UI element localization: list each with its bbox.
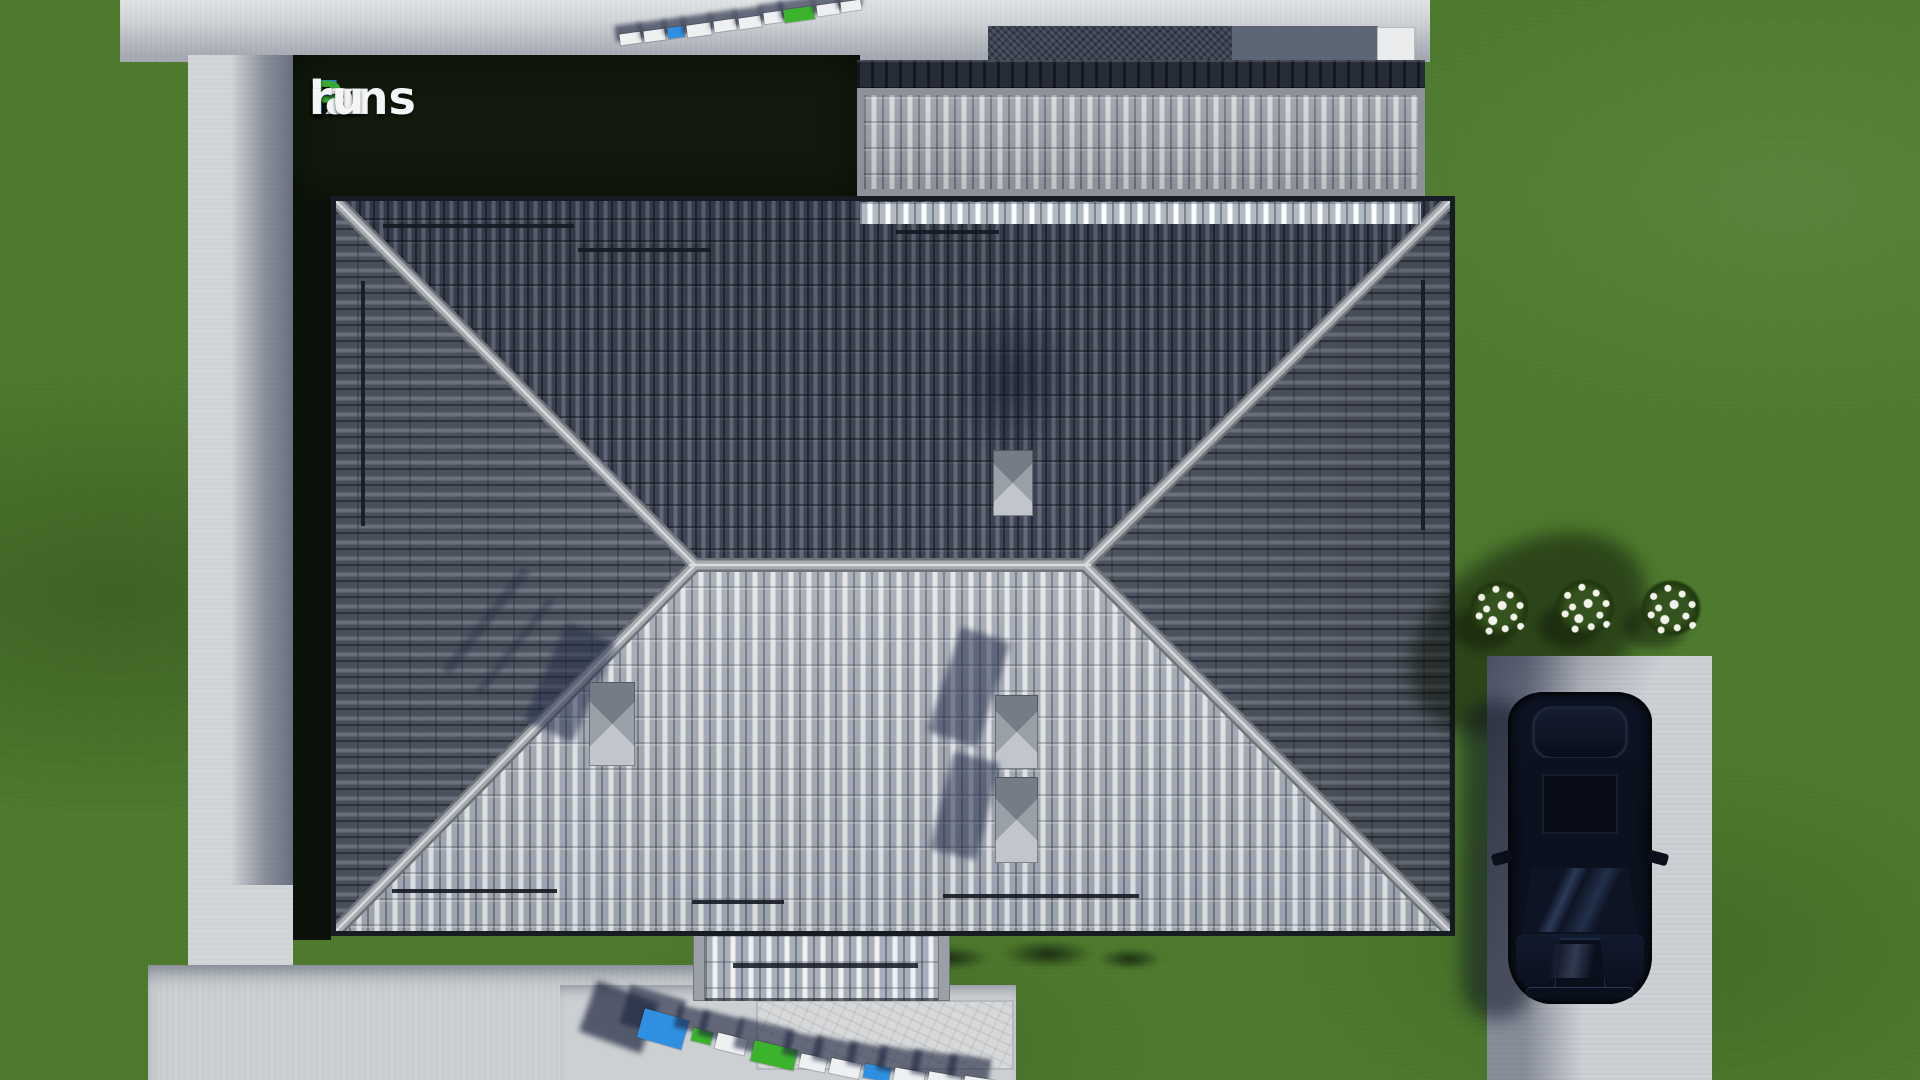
annex-roof-tiles xyxy=(864,95,1418,189)
flower-bush-3 xyxy=(1640,579,1702,637)
roof-ridge-lines xyxy=(331,196,1455,936)
gravel-pad xyxy=(988,26,1232,62)
car-rear-window xyxy=(1532,706,1628,760)
shrub-patch xyxy=(1098,948,1162,970)
porch-side-border xyxy=(693,935,705,1001)
porch-roof-tiles xyxy=(705,935,938,1001)
porch-side-border xyxy=(938,935,950,1001)
car-windshield xyxy=(1522,868,1638,932)
roof-edge-shadow-strip xyxy=(293,196,331,940)
hip-ridges xyxy=(333,198,1453,934)
porch-snow-guard xyxy=(733,963,918,968)
roof-vent-1 xyxy=(993,450,1033,516)
main-hip-roof xyxy=(331,196,1455,936)
watermark-segment: ru xyxy=(309,71,364,125)
annex-eave-course xyxy=(860,202,1421,224)
parked-car xyxy=(1508,692,1652,1004)
utility-box xyxy=(1378,28,1414,60)
roof-vent-2 xyxy=(589,682,635,766)
aerial-house-render: FixPlans.ru xyxy=(0,0,1920,1080)
shaded-yard-panel: FixPlans.ru xyxy=(293,55,860,196)
porch-roof xyxy=(693,935,950,1001)
car-hood-reflection xyxy=(1524,944,1636,978)
stamped-concrete-pad xyxy=(758,1002,1012,1068)
annex-roof-frame xyxy=(857,88,1425,196)
car-sunroof xyxy=(1542,774,1618,834)
curb-strip xyxy=(1232,26,1378,62)
flower-bush-1 xyxy=(1468,580,1530,638)
flower-bush-2 xyxy=(1554,578,1616,636)
annex-ridge-cap xyxy=(857,60,1425,90)
car-front-bumper xyxy=(1526,988,1634,998)
roof-vent-4 xyxy=(995,777,1038,863)
left-path-shadow xyxy=(230,55,293,885)
roof-vent-3 xyxy=(995,695,1038,769)
shrub-patch xyxy=(1002,940,1094,968)
annex-roof xyxy=(857,60,1425,196)
